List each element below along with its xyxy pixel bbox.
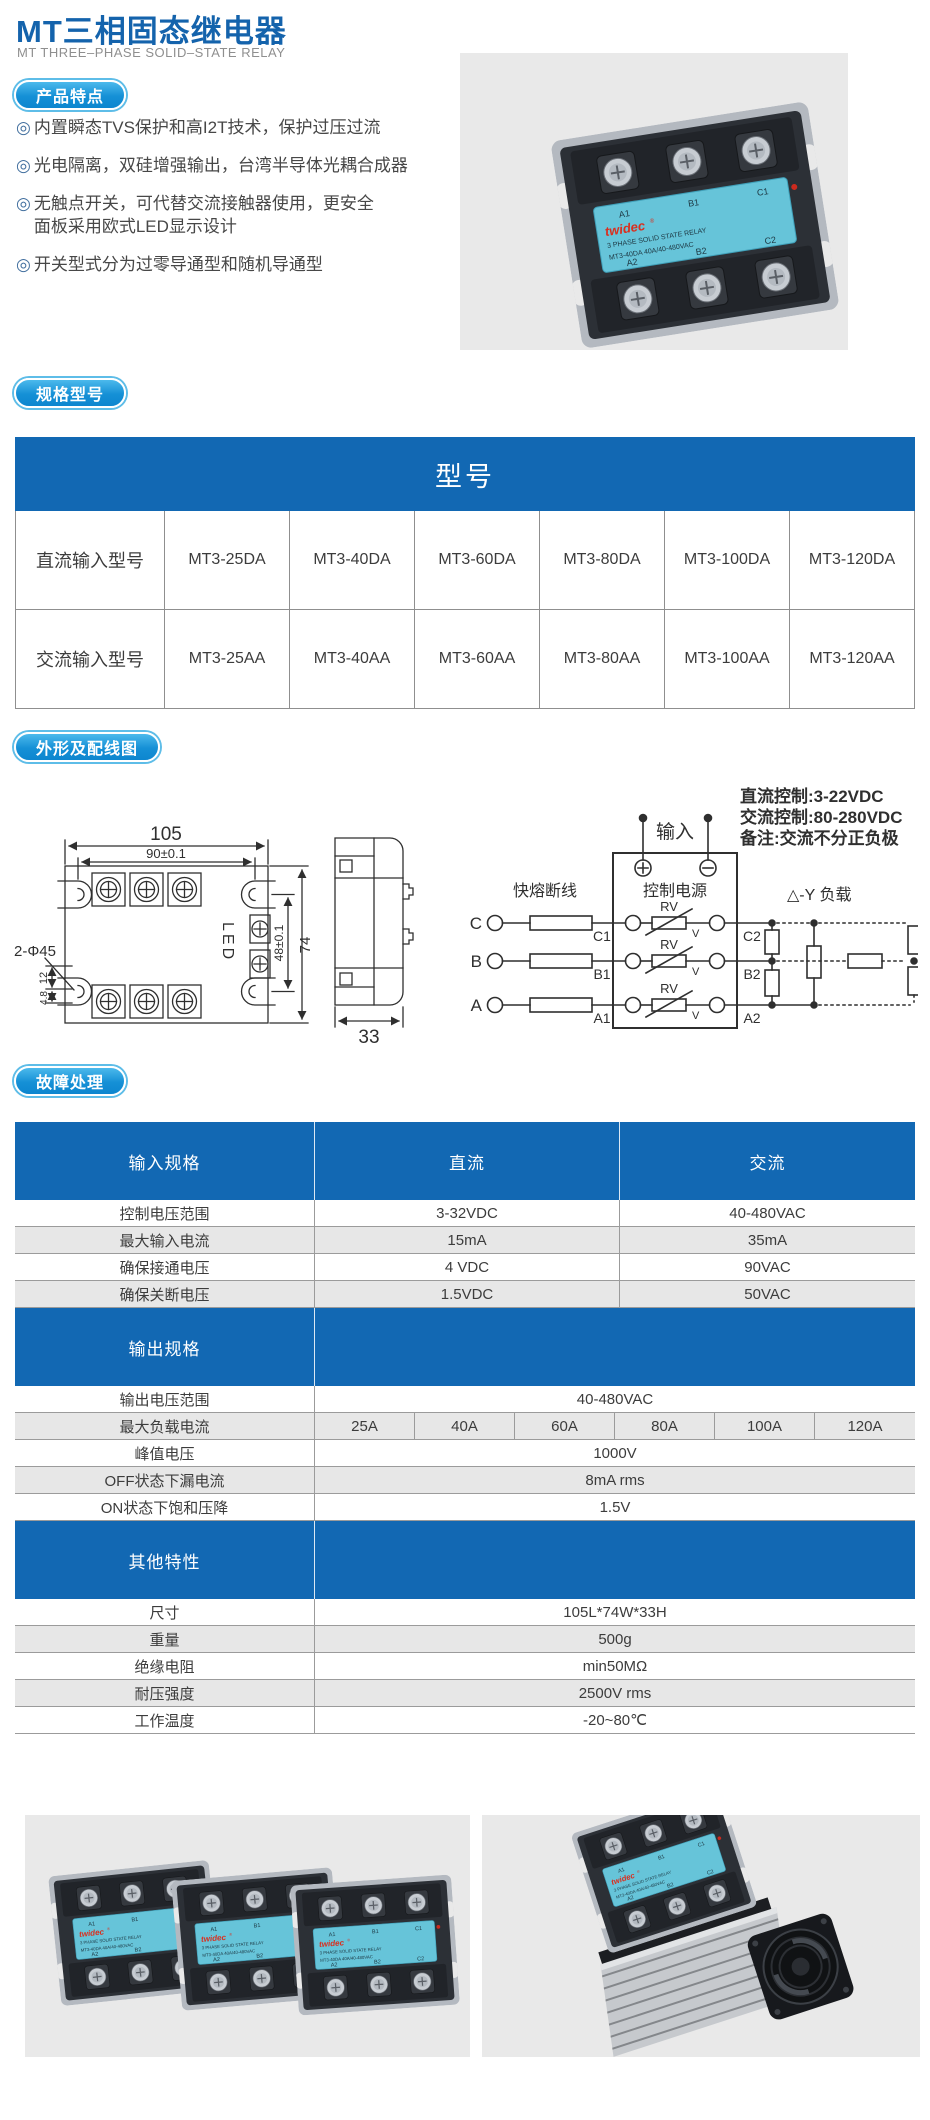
feature-text: 开关型式分为过零导通型和随机导通型 xyxy=(34,253,323,276)
model-row-label: 直流输入型号 xyxy=(15,511,165,610)
spec-row: 重量 500g xyxy=(15,1626,915,1653)
spec-value: 40-480VAC xyxy=(315,1386,915,1412)
header-cell: 其他特性 xyxy=(15,1521,315,1599)
spec-value: 1000V xyxy=(315,1440,915,1466)
model-cell: MT3-60AA xyxy=(415,610,540,709)
dim-48: 48±0.1 xyxy=(272,924,286,961)
spec-value: 50VAC xyxy=(620,1281,915,1307)
header-cell: 输入规格 xyxy=(15,1122,315,1200)
spec-value: 105L*74W*33H xyxy=(315,1599,915,1625)
spec-header-input: 输入规格 直流 交流 xyxy=(15,1122,915,1200)
terminal-b2: B2 xyxy=(743,966,760,982)
features-list: ◎ 内置瞬态TVS保护和高I2T技术，保护过压过流 ◎ 光电隔离，双硅增强输出，… xyxy=(16,116,456,291)
spec-value: min50MΩ xyxy=(315,1653,915,1679)
feature-text: 内置瞬态TVS保护和高I2T技术，保护过压过流 xyxy=(34,116,381,139)
spec-value: 120A xyxy=(815,1413,915,1439)
spec-label: 重量 xyxy=(15,1626,315,1652)
spec-label: 尺寸 xyxy=(15,1599,315,1625)
spec-row: 输出电压范围 40-480VAC xyxy=(15,1386,915,1413)
dim-105: 105 xyxy=(150,824,182,845)
badge-label: 外形及配线图 xyxy=(36,735,138,759)
spec-value: 90VAC xyxy=(620,1254,915,1280)
feature-item: ◎ 无触点开关，可代替交流接触器使用，更安全 面板采用欧式LED显示设计 xyxy=(16,192,456,238)
load-label: △-Y 负载 xyxy=(787,886,851,904)
relay-photo-illustration xyxy=(460,53,848,350)
badge-label: 规格型号 xyxy=(36,381,104,405)
spec-value: -20~80℃ xyxy=(315,1707,915,1733)
v-label-b: V xyxy=(692,966,700,978)
model-cell: MT3-100AA xyxy=(665,610,790,709)
feature-item: ◎ 开关型式分为过零导通型和随机导通型 xyxy=(16,253,456,276)
page-subtitle: MT THREE–PHASE SOLID–STATE RELAY xyxy=(17,45,285,60)
header-cell: 输出规格 xyxy=(15,1308,315,1386)
spec-value: 35mA xyxy=(620,1227,915,1253)
input-label: 输入 xyxy=(656,821,694,843)
model-cell: MT3-80AA xyxy=(540,610,665,709)
badge-label: 产品特点 xyxy=(36,83,104,107)
spec-row: 耐压强度 2500V rms xyxy=(15,1680,915,1707)
spec-label: 控制电压范围 xyxy=(15,1200,315,1226)
spec-value: 2500V rms xyxy=(315,1680,915,1706)
page: A1 B1 C1 twidec ® 3 PHASE SOLID STATE RE… xyxy=(0,0,930,2120)
spec-row: 控制电压范围 3-32VDC 40-480VAC xyxy=(15,1200,915,1227)
model-cell: MT3-120DA xyxy=(790,511,915,610)
rv-label-c: RV xyxy=(660,899,678,914)
phase-c: C xyxy=(470,914,482,933)
spec-row: 峰值电压 1000V xyxy=(15,1440,915,1467)
spec-value: 3-32VDC xyxy=(315,1200,620,1226)
model-cell: MT3-25AA xyxy=(165,610,290,709)
header-cell xyxy=(315,1308,915,1386)
led-label: LED xyxy=(219,922,236,962)
note-ac-control: 交流控制:80-280VDC xyxy=(740,807,903,827)
spec-row: 确保关断电压 1.5VDC 50VAC xyxy=(15,1281,915,1308)
spec-value: 15mA xyxy=(315,1227,620,1253)
terminal-a1: A1 xyxy=(593,1010,610,1026)
model-cell: MT3-120AA xyxy=(790,610,915,709)
model-cell: MT3-40AA xyxy=(290,610,415,709)
spec-value: 500g xyxy=(315,1626,915,1652)
feature-text: 无触点开关，可代替交流接触器使用，更安全 面板采用欧式LED显示设计 xyxy=(34,192,374,238)
dim-33: 33 xyxy=(358,1027,379,1048)
spec-value: 25A xyxy=(315,1413,415,1439)
relays-illustration xyxy=(25,1815,470,2057)
spec-value: 1.5VDC xyxy=(315,1281,620,1307)
note-dc-control: 直流控制:3-22VDC xyxy=(740,786,884,806)
side-view-drawing xyxy=(335,838,413,1027)
spec-value: 60A xyxy=(515,1413,615,1439)
spec-value: 80A xyxy=(615,1413,715,1439)
spec-row: 最大负载电流 25A 40A 60A 80A 100A 120A xyxy=(15,1413,915,1440)
bullet-icon: ◎ xyxy=(16,116,31,139)
model-cell: MT3-60DA xyxy=(415,511,540,610)
section-badge-fault: 故障处理 xyxy=(14,1066,126,1096)
spec-label: 工作温度 xyxy=(15,1707,315,1733)
header-cell: 直流 xyxy=(315,1122,620,1200)
dim-90: 90±0.1 xyxy=(146,846,186,861)
spec-value: 40A xyxy=(415,1413,515,1439)
spec-table: 输入规格 直流 交流 控制电压范围 3-32VDC 40-480VAC 最大输入… xyxy=(15,1122,915,1734)
dim-4-8: 4.8 xyxy=(39,991,50,1005)
spec-header-output: 输出规格 xyxy=(15,1308,915,1386)
phase-a: A xyxy=(471,996,483,1015)
dim-holes: 2-Φ45 xyxy=(14,943,56,960)
feature-text-line: 面板采用欧式LED显示设计 xyxy=(34,215,374,238)
badge-label: 故障处理 xyxy=(36,1069,104,1093)
spec-row: 绝缘电阻 min50MΩ xyxy=(15,1653,915,1680)
spec-label: 确保关断电压 xyxy=(15,1281,315,1307)
outline-wiring-diagram: 105 90±0.1 74 48±0.1 LED 2-Φ45 12 4.8 xyxy=(12,780,918,1065)
spec-row: OFF状态下漏电流 8mA rms xyxy=(15,1467,915,1494)
spec-row: 最大输入电流 15mA 35mA xyxy=(15,1227,915,1254)
rv-label-b: RV xyxy=(660,937,678,952)
front-view-drawing xyxy=(45,840,308,1023)
model-table: 型号 直流输入型号 MT3-25DA MT3-40DA MT3-60DA MT3… xyxy=(15,437,915,709)
model-cell: MT3-40DA xyxy=(290,511,415,610)
spec-label: 最大输入电流 xyxy=(15,1227,315,1253)
spec-label: 耐压强度 xyxy=(15,1680,315,1706)
feature-text-line: 无触点开关，可代替交流接触器使用，更安全 xyxy=(34,192,374,215)
header-cell: 交流 xyxy=(620,1122,915,1200)
photo-relay-heatsink xyxy=(482,1815,920,2057)
spec-label: 最大负载电流 xyxy=(15,1413,315,1439)
section-badge-models: 规格型号 xyxy=(14,378,126,408)
v-label-c: V xyxy=(692,928,700,940)
model-cell: MT3-80DA xyxy=(540,511,665,610)
spec-row: 尺寸 105L*74W*33H xyxy=(15,1599,915,1626)
product-photo xyxy=(460,53,848,350)
photo-relays-group xyxy=(25,1815,470,2057)
bullet-icon: ◎ xyxy=(16,192,31,238)
spec-label: 峰值电压 xyxy=(15,1440,315,1466)
phase-b: B xyxy=(471,952,482,971)
dim-74: 74 xyxy=(297,937,314,954)
spec-label: OFF状态下漏电流 xyxy=(15,1467,315,1493)
spec-label: 输出电压范围 xyxy=(15,1386,315,1412)
model-table-body: 直流输入型号 MT3-25DA MT3-40DA MT3-60DA MT3-80… xyxy=(15,511,915,709)
model-cell: MT3-25DA xyxy=(165,511,290,610)
heatsink-illustration xyxy=(482,1815,920,2057)
note-remark: 备注:交流不分正负极 xyxy=(739,828,899,848)
feature-text: 光电隔离，双硅增强输出，台湾半导体光耦合成器 xyxy=(34,154,408,177)
spec-value: 4 VDC xyxy=(315,1254,620,1280)
header-cell xyxy=(315,1521,915,1599)
spec-row: 确保接通电压 4 VDC 90VAC xyxy=(15,1254,915,1281)
model-table-header: 型号 xyxy=(15,437,915,511)
section-badge-outline: 外形及配线图 xyxy=(14,732,160,762)
spec-row: ON状态下饱和压降 1.5V xyxy=(15,1494,915,1521)
spec-header-other: 其他特性 xyxy=(15,1521,915,1599)
dim-12: 12 xyxy=(38,972,50,984)
model-cell: MT3-100DA xyxy=(665,511,790,610)
terminal-c1: C1 xyxy=(593,928,611,944)
spec-row: 工作温度 -20~80℃ xyxy=(15,1707,915,1734)
spec-label: 确保接通电压 xyxy=(15,1254,315,1280)
wiring-labels: 输入 直流控制:3-22VDC 交流控制:80-280VDC 备注:交流不分正负… xyxy=(470,786,903,1026)
terminal-c2: C2 xyxy=(743,928,761,944)
spec-value: 40-480VAC xyxy=(620,1200,915,1226)
feature-item: ◎ 内置瞬态TVS保护和高I2T技术，保护过压过流 xyxy=(16,116,456,139)
bullet-icon: ◎ xyxy=(16,154,31,177)
terminal-b1: B1 xyxy=(593,966,610,982)
spec-value: 1.5V xyxy=(315,1494,915,1520)
spec-label: 绝缘电阻 xyxy=(15,1653,315,1679)
fuse-label: 快熔断线 xyxy=(513,882,577,900)
v-label-a: V xyxy=(692,1010,700,1022)
feature-item: ◎ 光电隔离，双硅增强输出，台湾半导体光耦合成器 xyxy=(16,154,456,177)
spec-value: 8mA rms xyxy=(315,1467,915,1493)
spec-value: 100A xyxy=(715,1413,815,1439)
terminal-a2: A2 xyxy=(743,1010,760,1026)
spec-label: ON状态下饱和压降 xyxy=(15,1494,315,1520)
model-row-label: 交流输入型号 xyxy=(15,610,165,709)
rv-label-a: RV xyxy=(660,981,678,996)
bullet-icon: ◎ xyxy=(16,253,31,276)
control-power-label: 控制电源 xyxy=(643,882,707,900)
section-badge-features: 产品特点 xyxy=(14,80,126,110)
